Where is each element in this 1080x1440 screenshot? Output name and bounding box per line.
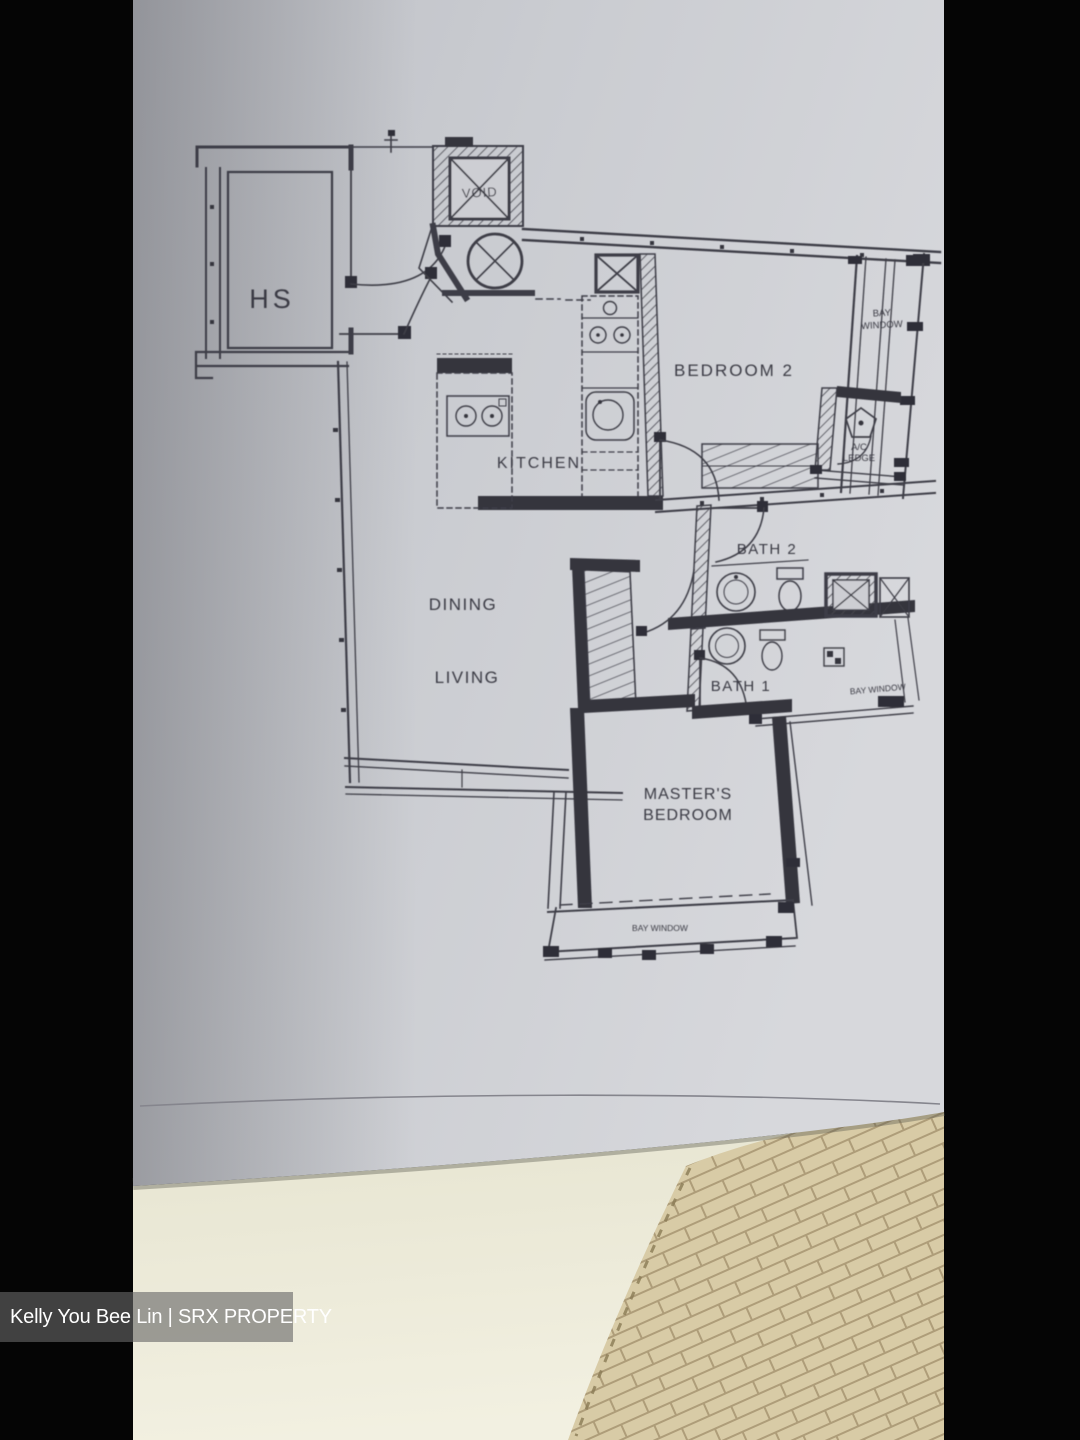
watermark-bar: Kelly You Bee Lin | SRX PROPERTY bbox=[0, 1292, 293, 1342]
paper-sheet bbox=[133, 0, 944, 1186]
room-label-living: LIVING bbox=[435, 668, 500, 687]
watermark-text: Kelly You Bee Lin | SRX PROPERTY bbox=[0, 1306, 332, 1329]
room-label-bath1: BATH 1 bbox=[711, 678, 771, 695]
photo-of-floorplan: HS VOID KITCHEN BEDROOM 2 BAY WINDOW A/C… bbox=[0, 0, 1080, 1440]
label-bay-window-line2: WINDOW bbox=[861, 319, 903, 332]
room-label-bath2: BATH 2 bbox=[737, 541, 797, 558]
wardrobe bbox=[584, 570, 636, 706]
label-ac-ledge-line1: A/C bbox=[851, 442, 867, 453]
room-label-hs: HS bbox=[249, 284, 295, 314]
floorplan-photo-canvas: HS VOID KITCHEN BEDROOM 2 BAY WINDOW A/C… bbox=[0, 0, 1080, 1440]
label-ac-ledge-line2: LEDGE bbox=[843, 453, 875, 464]
label-bay-window-master: BAY WINDOW bbox=[632, 923, 688, 933]
room-label-kitchen: KITCHEN bbox=[497, 455, 581, 472]
room-label-master-line1: MASTER'S bbox=[644, 786, 732, 803]
room-label-dining: DINING bbox=[429, 595, 498, 614]
room-label-bedroom2: BEDROOM 2 bbox=[674, 361, 794, 380]
room-label-master-line2: BEDROOM bbox=[643, 807, 733, 824]
label-bay-window-line1: BAY bbox=[872, 307, 892, 319]
room-label-void: VOID bbox=[461, 184, 498, 201]
